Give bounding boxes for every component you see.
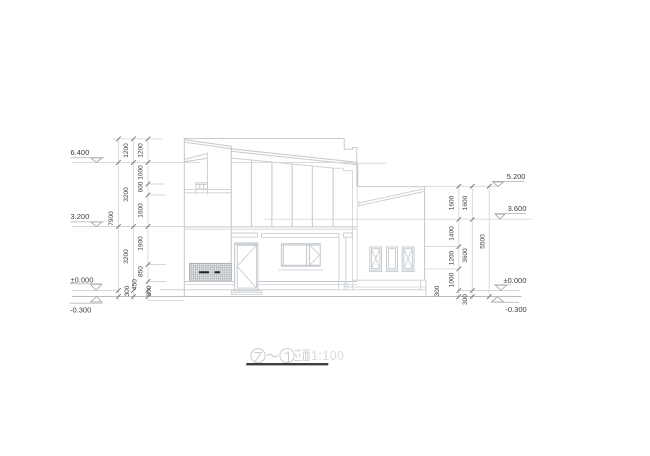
svg-text:3.200: 3.200 [71, 212, 90, 221]
svg-text:1600: 1600 [462, 195, 469, 210]
svg-text:1:100: 1:100 [311, 349, 344, 363]
svg-text:1200: 1200 [123, 143, 130, 158]
svg-text:300: 300 [462, 294, 469, 305]
svg-text:1200: 1200 [449, 250, 456, 265]
svg-text:-0.300: -0.300 [70, 306, 91, 315]
svg-text:600: 600 [138, 181, 145, 192]
svg-text:300: 300 [124, 285, 131, 296]
svg-text:1900: 1900 [138, 236, 145, 251]
svg-text:1000: 1000 [449, 272, 456, 287]
svg-text:3600: 3600 [462, 248, 469, 263]
svg-text:1200: 1200 [138, 143, 145, 158]
svg-text:6.400: 6.400 [71, 148, 90, 157]
svg-text:450: 450 [132, 279, 139, 290]
svg-text:300: 300 [434, 285, 441, 296]
svg-text:3200: 3200 [123, 187, 130, 202]
svg-text:±0.000: ±0.000 [71, 275, 94, 284]
svg-text:7900: 7900 [108, 211, 115, 226]
svg-text:300: 300 [146, 285, 153, 296]
svg-text:850: 850 [138, 266, 145, 277]
svg-text:1400: 1400 [449, 226, 456, 241]
svg-text:-0.300: -0.300 [505, 305, 526, 314]
svg-text:1600: 1600 [138, 203, 145, 218]
svg-text:1000: 1000 [138, 165, 145, 180]
svg-text:3.600: 3.600 [508, 204, 527, 213]
svg-text:5500: 5500 [479, 234, 486, 249]
svg-text:±0.000: ±0.000 [504, 276, 527, 285]
svg-text:1600: 1600 [449, 195, 456, 210]
svg-text:5.200: 5.200 [507, 172, 526, 181]
svg-text:3200: 3200 [123, 249, 130, 264]
